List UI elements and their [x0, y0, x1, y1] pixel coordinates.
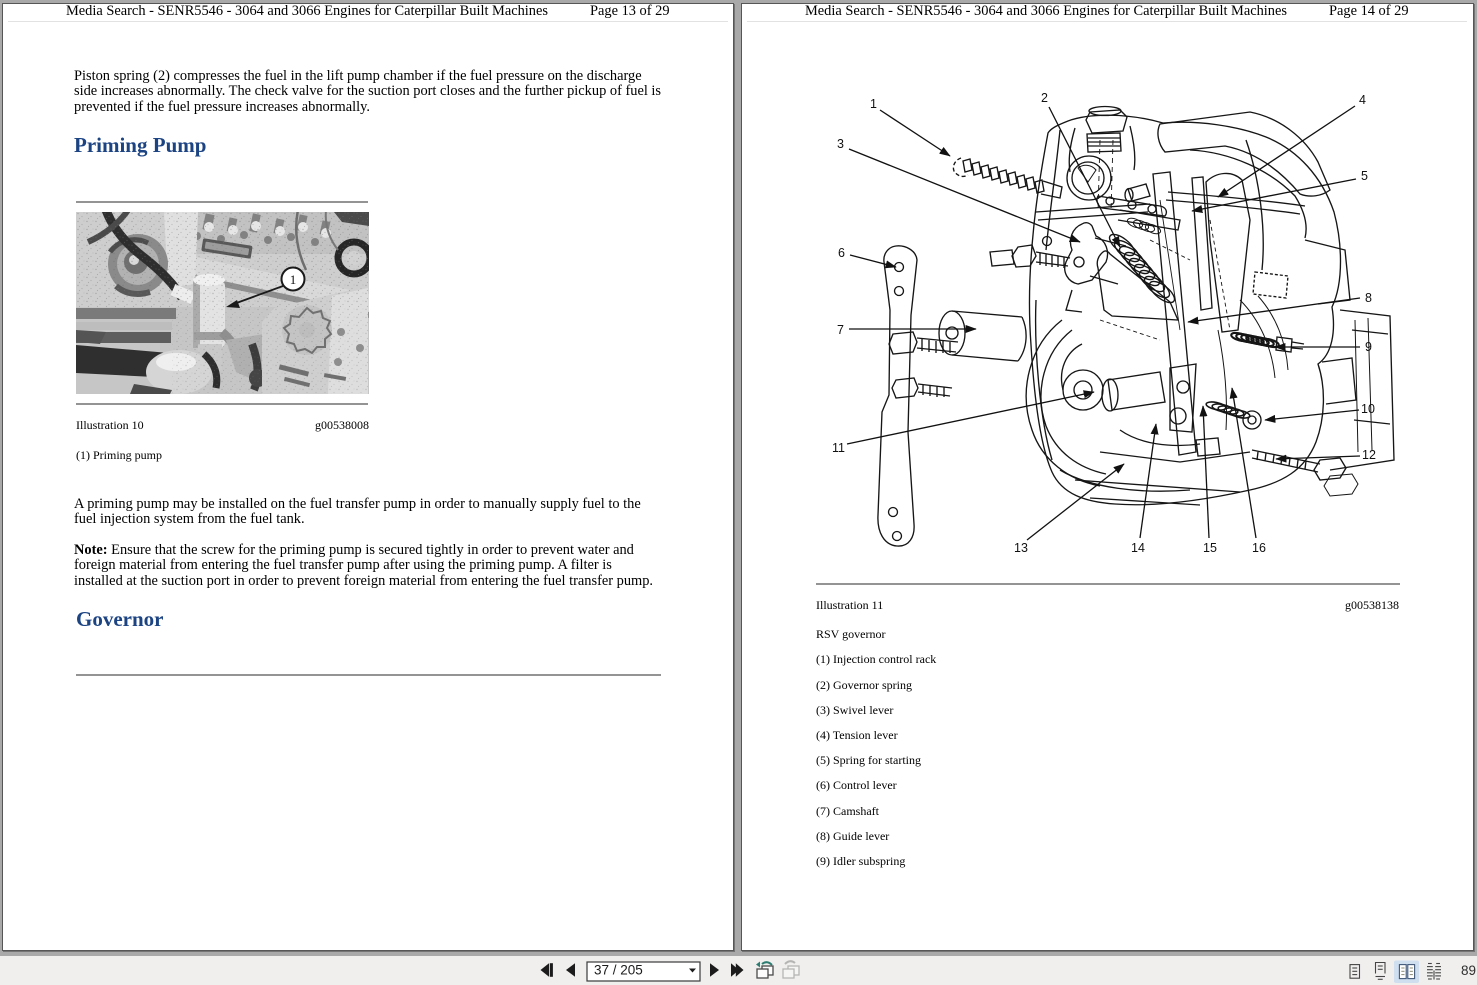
svg-text:7: 7 — [837, 323, 844, 337]
svg-text:14: 14 — [1131, 541, 1145, 555]
svg-text:4: 4 — [1359, 93, 1366, 107]
svg-text:15: 15 — [1203, 541, 1217, 555]
svg-text:12: 12 — [1362, 448, 1376, 462]
svg-text:1: 1 — [870, 97, 877, 111]
svg-text:13: 13 — [1014, 541, 1028, 555]
svg-text:89: 89 — [1461, 963, 1476, 978]
svg-text:3: 3 — [837, 137, 844, 151]
svg-text:37 / 205: 37 / 205 — [594, 963, 643, 978]
svg-text:5: 5 — [1361, 169, 1368, 183]
svg-text:16: 16 — [1252, 541, 1266, 555]
svg-text:11: 11 — [832, 441, 845, 455]
svg-text:9: 9 — [1365, 340, 1372, 354]
svg-text:1: 1 — [290, 272, 297, 287]
svg-text:2: 2 — [1041, 91, 1048, 105]
svg-text:10: 10 — [1361, 402, 1375, 416]
svg-text:8: 8 — [1365, 291, 1372, 305]
svg-text:6: 6 — [838, 246, 845, 260]
